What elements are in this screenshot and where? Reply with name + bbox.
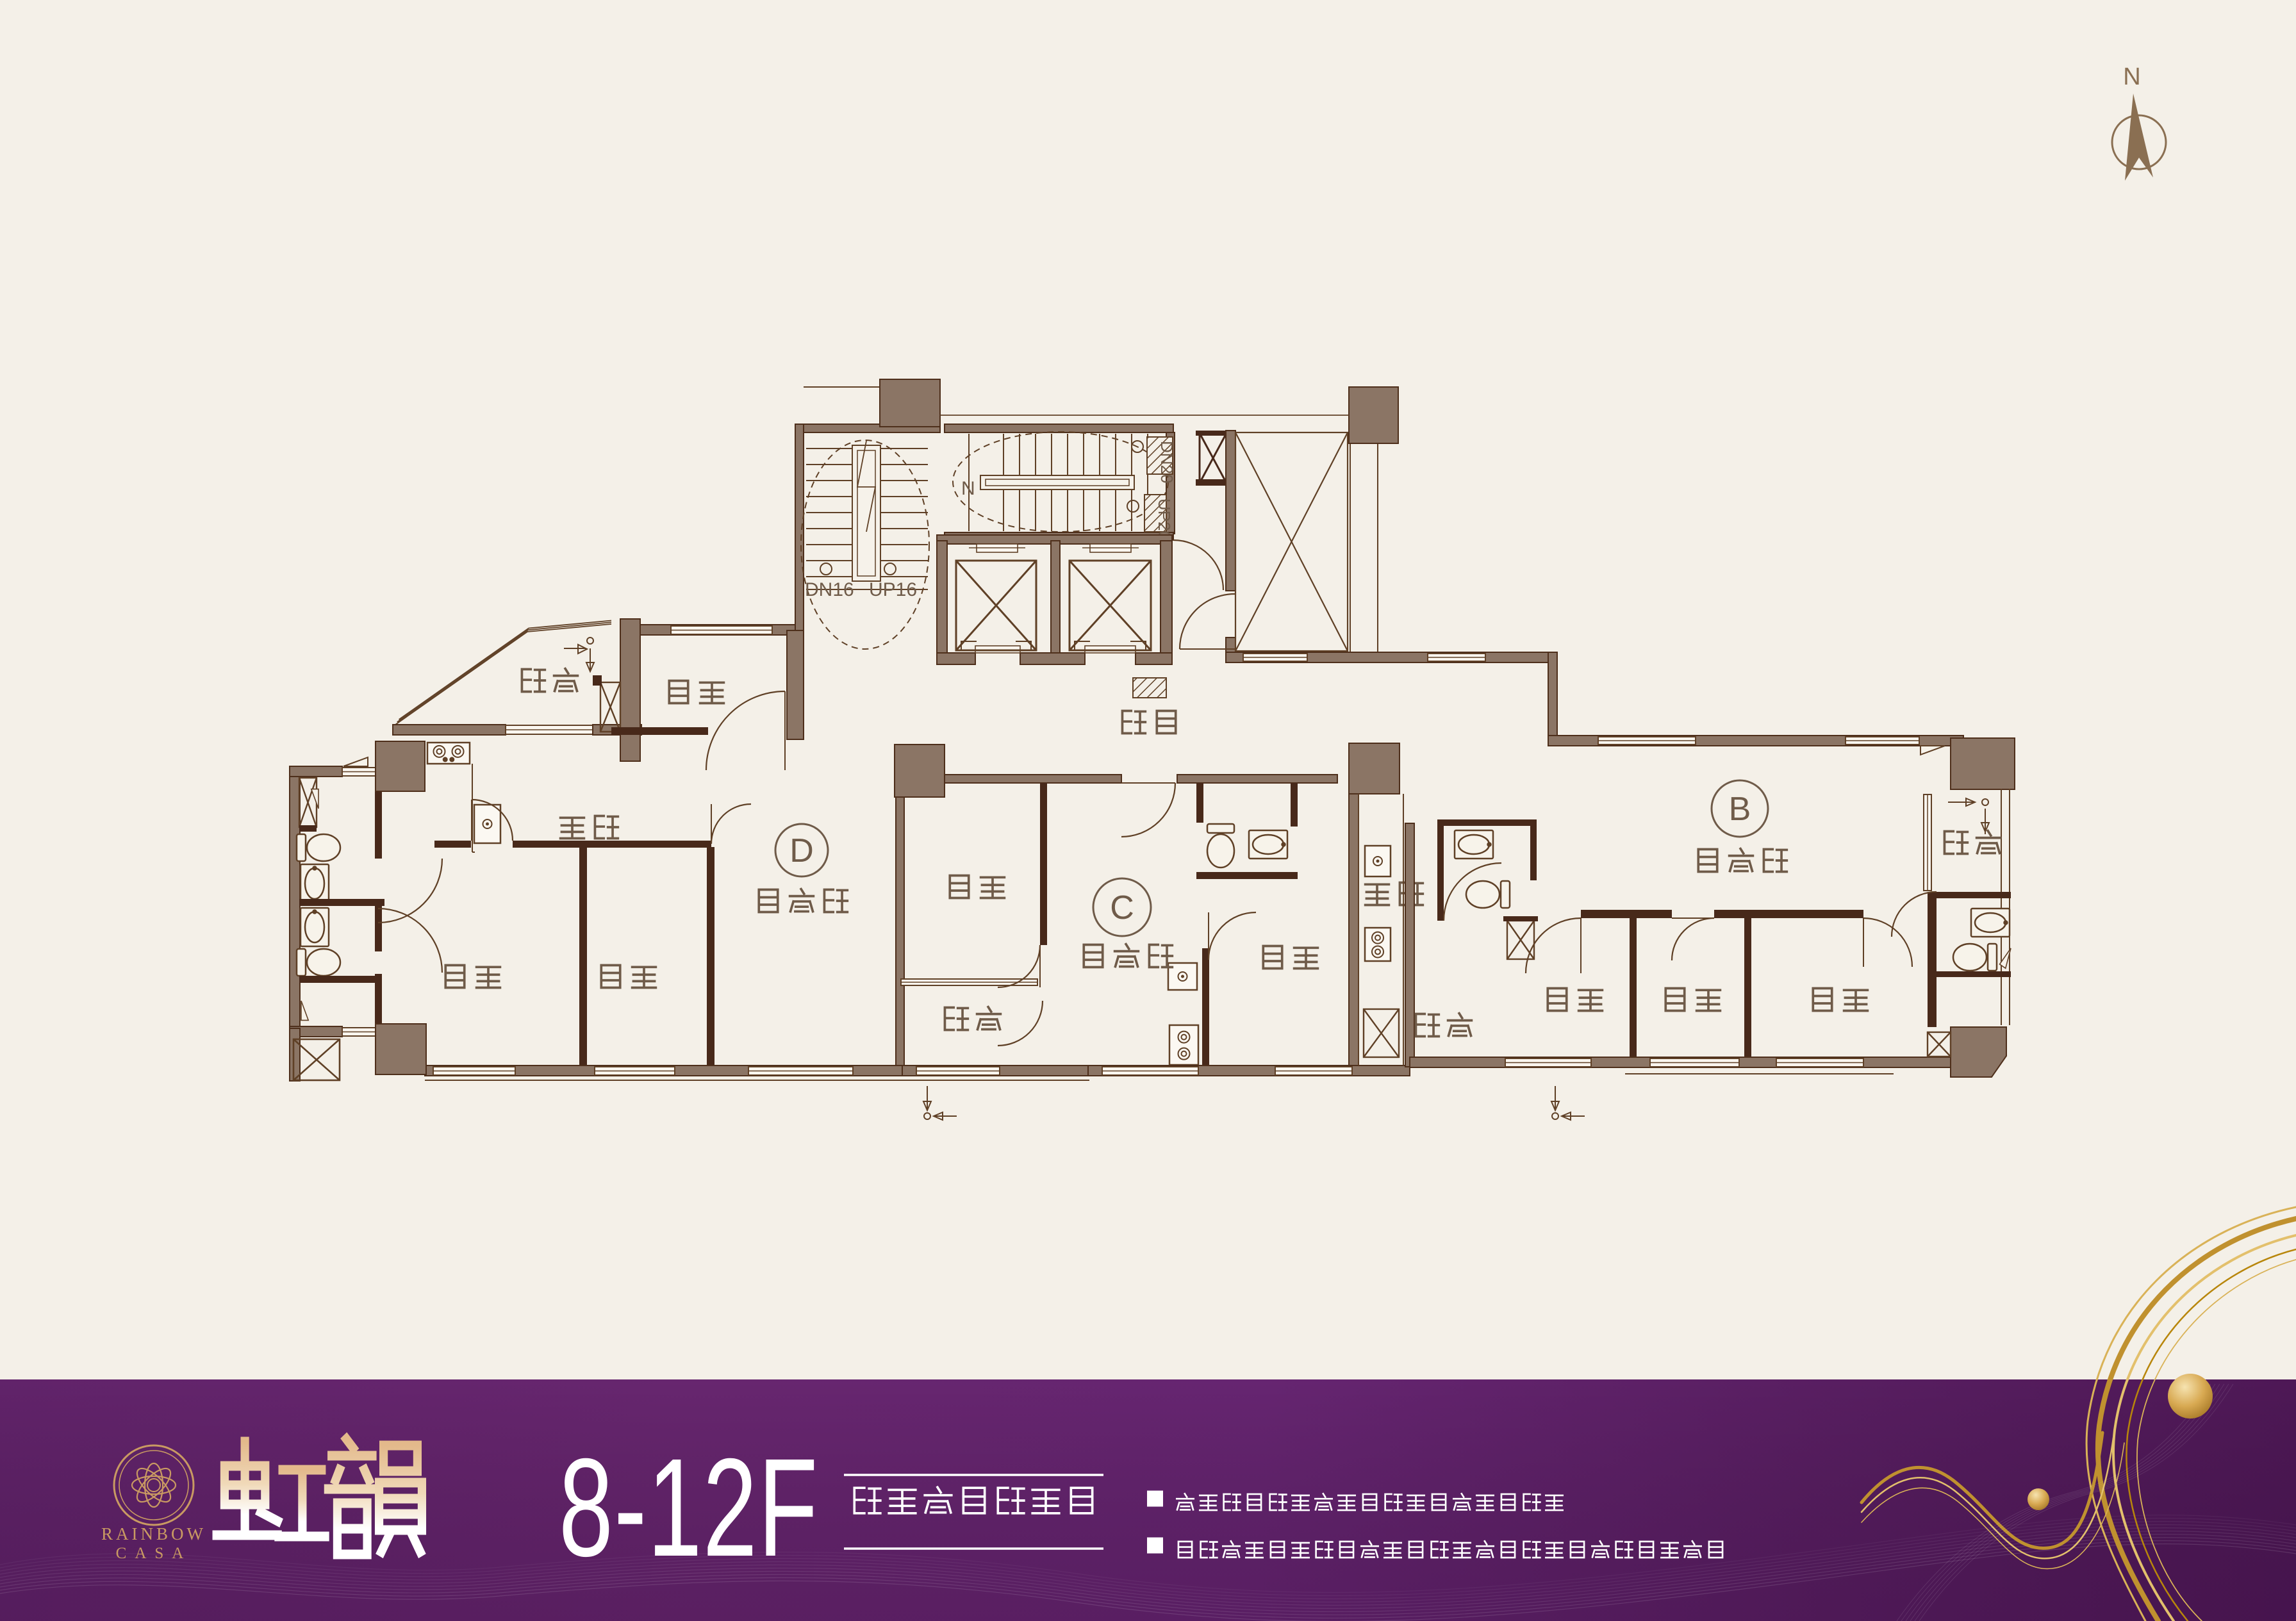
- svg-text:B: B: [1729, 791, 1751, 828]
- svg-text:C: C: [1110, 889, 1134, 926]
- svg-text:DN20: DN20: [1157, 441, 1177, 483]
- svg-text:8-12F: 8-12F: [559, 1429, 819, 1585]
- svg-text:UP20: UP20: [1155, 498, 1174, 540]
- svg-text:N: N: [2123, 63, 2140, 90]
- svg-text:D: D: [789, 832, 814, 869]
- svg-text:N: N: [961, 478, 975, 499]
- svg-text:CASA: CASA: [116, 1545, 192, 1562]
- svg-text:DN16: DN16: [805, 579, 854, 600]
- svg-text:RAINBOW: RAINBOW: [101, 1524, 206, 1543]
- svg-text:UP16: UP16: [869, 579, 917, 600]
